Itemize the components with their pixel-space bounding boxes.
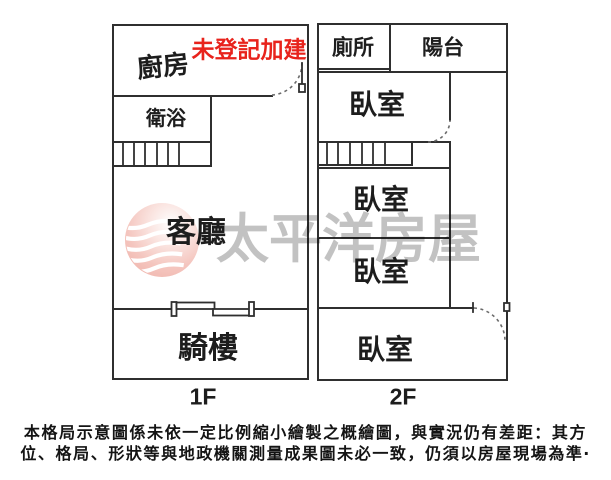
disclaimer-line-2: 位、格局、形狀等與地政機關測量成果圖未必一致，仍須以房屋現場為準‧ [0, 444, 611, 465]
room-label-bath: 衛浴 [146, 109, 186, 129]
room-label-bedroom-top: 臥室 [349, 91, 405, 119]
floor-1f-sliding-door-icon [113, 302, 308, 316]
room-label-bedroom-bottom: 臥室 [357, 336, 413, 364]
disclaimer-text: 本格局示意圖係未依一定比例縮小繪製之概繪圖，與實況仍有差距：其方 位、格局、形狀… [0, 423, 611, 465]
floorplan-diagram: 太平洋房屋 廚房 未登記加建 衛浴 客廳 騎樓 1F 廁所 陽台 臥室 臥室 臥… [0, 0, 611, 480]
watermark-text: 太平洋房屋 [216, 212, 481, 268]
unregistered-addition-label: 未登記加建 [192, 39, 307, 62]
floor-2f-stairs-icon [327, 142, 385, 165]
floor-1f-stairs-icon [123, 142, 179, 166]
floor-label-1f: 1F [190, 386, 217, 409]
floor-label-2f: 2F [390, 386, 417, 409]
room-label-bedroom-mid1: 臥室 [353, 186, 409, 214]
disclaimer-line-1: 本格局示意圖係未依一定比例縮小繪製之概繪圖，與實況仍有差距：其方 [0, 423, 611, 444]
floor-1f-kitchen-door-arc-icon [272, 63, 305, 95]
room-label-living: 客廳 [166, 218, 226, 248]
floor-2f-outline [318, 24, 507, 380]
room-label-balcony: 陽台 [422, 38, 464, 59]
room-label-bedroom-mid2: 臥室 [353, 258, 409, 286]
room-label-kitchen: 廚房 [136, 50, 190, 81]
room-label-toilet: 廁所 [332, 38, 374, 59]
room-label-arcade: 騎樓 [178, 334, 238, 364]
